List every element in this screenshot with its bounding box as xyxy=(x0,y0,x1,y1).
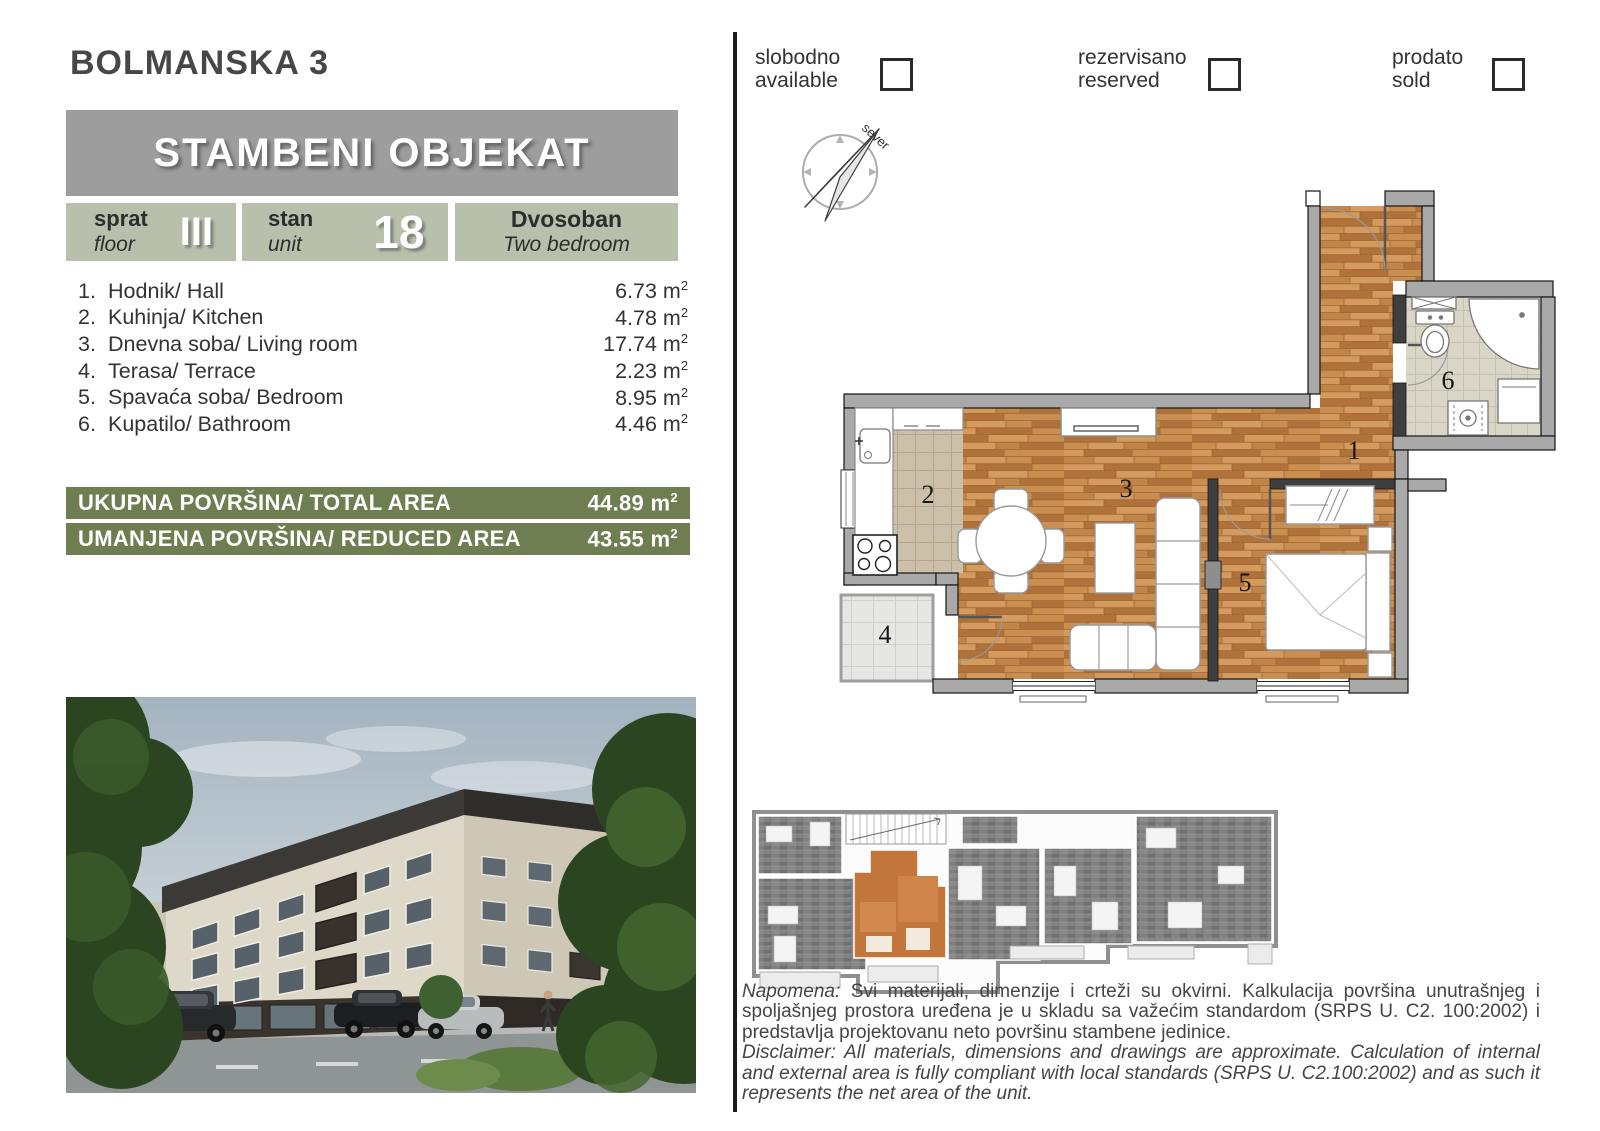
room-name: Spavaća soba/ Bedroom xyxy=(108,385,615,410)
room-row: 2. Kuhinja/ Kitchen 4.78 m2 xyxy=(78,305,688,332)
floor-label-en: floor xyxy=(94,232,148,258)
floor-box: sprat floor III xyxy=(66,203,236,261)
note-sr-text: Svi materijali, dimenzije i crteži su ok… xyxy=(742,981,1540,1043)
unit-m: m xyxy=(663,279,681,303)
room-area-value: 8.95 xyxy=(615,386,657,410)
reduced-area-label: UMANJENA POVRŠINA/ REDUCED AREA xyxy=(78,526,521,552)
unit-label-sr: stan xyxy=(268,206,313,232)
unit-m: m xyxy=(663,333,681,357)
room-row: 5. Spavaća soba/ Bedroom 8.95 m2 xyxy=(78,384,688,411)
legend-available-en: available xyxy=(755,69,840,92)
note-en-label: Disclaimer: xyxy=(742,1042,836,1063)
legend-reserved-en: reserved xyxy=(1078,69,1187,92)
reduced-area-value: 43.55 m2 xyxy=(588,526,679,552)
note-sr-label: Napomena: xyxy=(742,981,840,1002)
reserved-checkbox[interactable] xyxy=(1208,58,1241,91)
plan-label-5: 5 xyxy=(1239,568,1252,597)
room-row: 4. Terasa/ Terrace 2.23 m2 xyxy=(78,358,688,385)
room-number: 3. xyxy=(78,332,108,357)
legend-sold: prodato sold xyxy=(1392,46,1463,92)
room-name: Dnevna soba/ Living room xyxy=(108,332,603,357)
room-area-value: 17.74 xyxy=(603,333,657,357)
notes-block: Napomena: Svi materijali, dimenzije i cr… xyxy=(742,982,1540,1104)
floor-labels: sprat floor xyxy=(94,206,148,258)
total-area-bar: UKUPNA POVRŠINA/ TOTAL AREA 44.89 m2 xyxy=(66,487,690,519)
unit-sup: 2 xyxy=(681,385,688,400)
plan-label-1: 1 xyxy=(1348,436,1361,465)
unit-m: m xyxy=(650,526,670,551)
unit-sup: 2 xyxy=(670,526,678,541)
room-area-value: 6.73 xyxy=(615,279,657,303)
room-number: 5. xyxy=(78,385,108,410)
total-area-value: 44.89 m2 xyxy=(588,490,679,516)
unit-sup: 2 xyxy=(681,411,688,426)
room-name: Terasa/ Terrace xyxy=(108,359,615,384)
room-area: 8.95 m2 xyxy=(615,385,688,411)
room-number: 6. xyxy=(78,412,108,437)
building-render-image xyxy=(66,697,696,1093)
total-area-label: UKUPNA POVRŠINA/ TOTAL AREA xyxy=(78,490,451,516)
room-list: 1. Hodnik/ Hall 6.73 m2 2. Kuhinja/ Kitc… xyxy=(78,278,688,438)
plan-label-4: 4 xyxy=(879,620,892,649)
plan-label-2: 2 xyxy=(922,480,935,509)
room-area: 4.78 m2 xyxy=(615,305,688,331)
plan-label-6: 6 xyxy=(1442,366,1455,395)
reduced-area-bar: UMANJENA POVRŠINA/ REDUCED AREA 43.55 m2 xyxy=(66,523,690,555)
unit-sup: 2 xyxy=(670,490,678,505)
plan-label-3: 3 xyxy=(1120,474,1133,503)
room-area: 4.46 m2 xyxy=(615,411,688,437)
legend-sold-en: sold xyxy=(1392,69,1463,92)
unit-m: m xyxy=(650,490,670,515)
total-area-number: 44.89 xyxy=(588,490,645,515)
column-divider xyxy=(733,32,737,1112)
unit-sup: 2 xyxy=(681,358,688,373)
unit-sup: 2 xyxy=(681,305,688,320)
room-number: 1. xyxy=(78,279,108,304)
unit-labels: stan unit xyxy=(268,206,313,258)
type-label-sr: Dvosoban xyxy=(511,206,622,232)
note-en: Disclaimer: All materials, dimensions an… xyxy=(742,1043,1540,1104)
room-row: 6. Kupatilo/ Bathroom 4.46 m2 xyxy=(78,411,688,438)
room-number: 4. xyxy=(78,359,108,384)
available-checkbox[interactable] xyxy=(880,58,913,91)
unit-m: m xyxy=(663,412,681,436)
floor-overview-plan xyxy=(748,806,1280,998)
note-en-text: All materials, dimensions and drawings a… xyxy=(742,1042,1540,1104)
unit-sup: 2 xyxy=(681,331,688,346)
legend-sold-sr: prodato xyxy=(1392,46,1463,69)
unit-m: m xyxy=(663,359,681,383)
room-name: Kupatilo/ Bathroom xyxy=(108,412,615,437)
type-label-en: Two bedroom xyxy=(503,232,630,258)
room-row: 1. Hodnik/ Hall 6.73 m2 xyxy=(78,278,688,305)
unit-box: stan unit 18 xyxy=(242,203,448,261)
page-title: BOLMANSKA 3 xyxy=(70,44,329,83)
room-area-value: 2.23 xyxy=(615,359,657,383)
reduced-area-number: 43.55 xyxy=(588,526,645,551)
unit-value: 18 xyxy=(373,205,424,259)
room-row: 3. Dnevna soba/ Living room 17.74 m2 xyxy=(78,331,688,358)
unit-m: m xyxy=(663,386,681,410)
unit-label-en: unit xyxy=(268,232,313,258)
type-labels: Dvosoban Two bedroom xyxy=(503,206,630,258)
room-area-value: 4.46 xyxy=(615,412,657,436)
legend-reserved-sr: rezervisano xyxy=(1078,46,1187,69)
room-area: 2.23 m2 xyxy=(615,358,688,384)
note-sr: Napomena: Svi materijali, dimenzije i cr… xyxy=(742,982,1540,1043)
room-area: 6.73 m2 xyxy=(615,278,688,304)
type-box: Dvosoban Two bedroom xyxy=(455,203,678,261)
unit-m: m xyxy=(663,306,681,330)
building-banner-label: STAMBENI OBJEKAT xyxy=(153,131,590,176)
brochure-page: BOLMANSKA 3 STAMBENI OBJEKAT sprat floor… xyxy=(0,0,1600,1131)
room-name: Kuhinja/ Kitchen xyxy=(108,305,615,330)
floor-plan: 1 2 3 4 5 6 xyxy=(808,183,1556,708)
floor-value: III xyxy=(180,210,213,255)
building-banner: STAMBENI OBJEKAT xyxy=(66,110,678,196)
room-name: Hodnik/ Hall xyxy=(108,279,615,304)
room-number: 2. xyxy=(78,305,108,330)
legend-reserved: rezervisano reserved xyxy=(1078,46,1187,92)
room-area-value: 4.78 xyxy=(615,306,657,330)
floor-label-sr: sprat xyxy=(94,206,148,232)
room-area: 17.74 m2 xyxy=(603,331,688,357)
legend-available: slobodno available xyxy=(755,46,840,92)
sold-checkbox[interactable] xyxy=(1492,58,1525,91)
legend-available-sr: slobodno xyxy=(755,46,840,69)
unit-sup: 2 xyxy=(681,278,688,293)
